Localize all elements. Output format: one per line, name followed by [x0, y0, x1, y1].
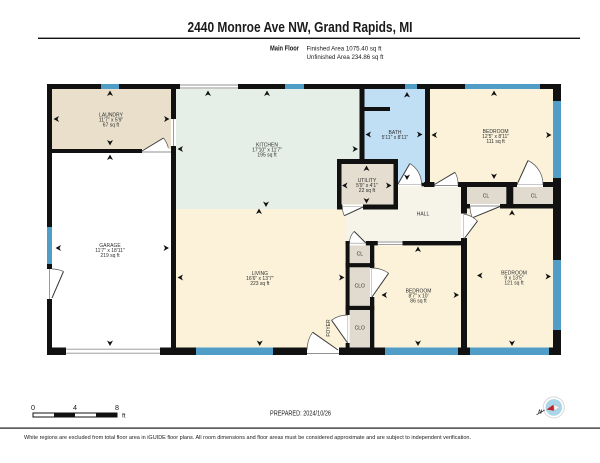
- svg-text:CLO: CLO: [355, 284, 365, 290]
- svg-text:4: 4: [73, 403, 77, 412]
- svg-text:2440 Monroe Ave NW, Grand Rapi: 2440 Monroe Ave NW, Grand Rapids, MI: [188, 20, 413, 36]
- svg-text:0: 0: [31, 403, 35, 412]
- svg-text:CLO: CLO: [355, 326, 365, 332]
- svg-text:Finished Area 1075.40 sq ft: Finished Area 1075.40 sq ft: [307, 46, 382, 53]
- svg-text:5'11" x 8'11": 5'11" x 8'11": [382, 135, 409, 141]
- svg-text:CL: CL: [483, 194, 490, 200]
- svg-text:121 sq ft: 121 sq ft: [504, 280, 524, 286]
- svg-text:86 sq ft: 86 sq ft: [410, 299, 427, 305]
- svg-text:HALL: HALL: [417, 211, 430, 217]
- svg-text:8: 8: [115, 403, 119, 412]
- svg-text:223 sq ft: 223 sq ft: [250, 281, 270, 287]
- svg-text:CL: CL: [531, 194, 538, 200]
- svg-text:White regions are excluded fro: White regions are excluded from total fl…: [24, 435, 471, 441]
- svg-text:111 sq ft: 111 sq ft: [486, 139, 505, 145]
- svg-text:195 sq ft: 195 sq ft: [257, 153, 277, 159]
- svg-text:22 sq ft: 22 sq ft: [359, 188, 376, 194]
- svg-text:CL: CL: [357, 252, 364, 258]
- svg-text:Main Floor: Main Floor: [270, 44, 299, 53]
- svg-text:67 sq ft: 67 sq ft: [103, 123, 120, 129]
- svg-text:219 sq ft: 219 sq ft: [100, 253, 120, 259]
- svg-text:PREPARED: 2024/10/26: PREPARED: 2024/10/26: [270, 411, 331, 418]
- svg-text:Unfinished Area 234.86 sq ft: Unfinished Area 234.86 sq ft: [307, 54, 384, 61]
- svg-text:FOYER: FOYER: [326, 319, 332, 337]
- svg-text:ft: ft: [122, 413, 126, 420]
